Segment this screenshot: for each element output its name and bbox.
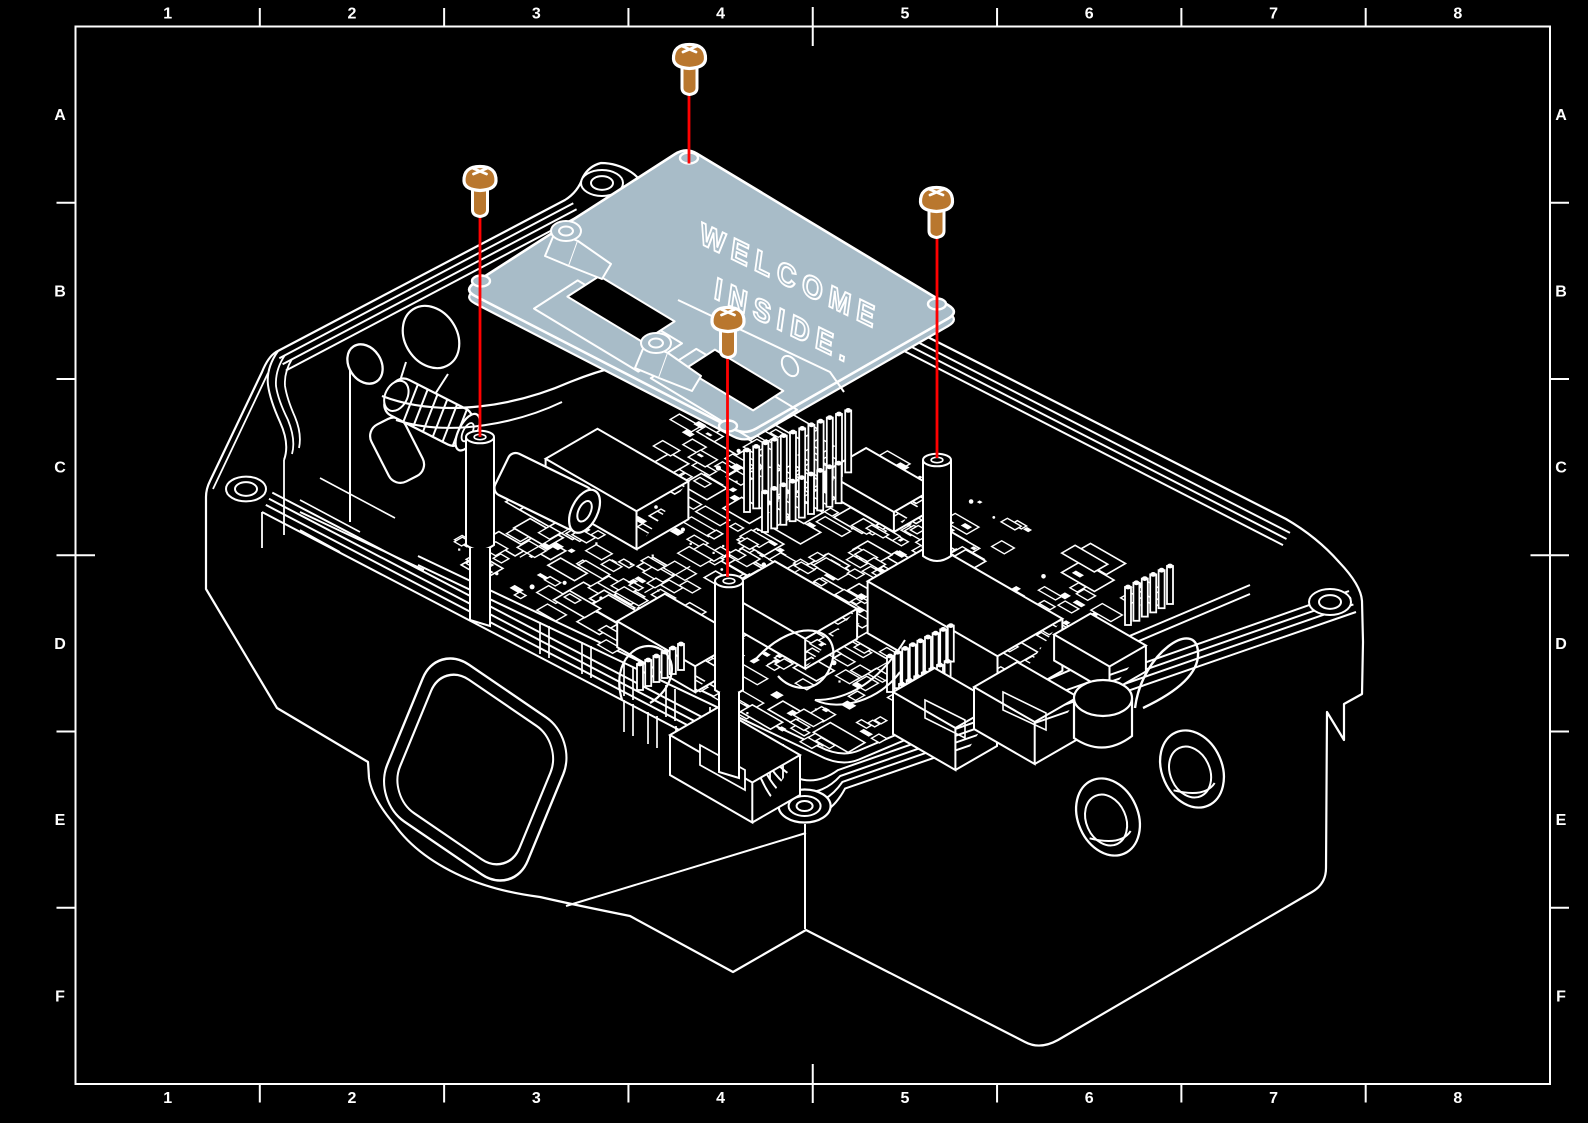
svg-text:C: C bbox=[1555, 460, 1567, 477]
svg-text:6: 6 bbox=[1085, 6, 1094, 23]
svg-text:2: 2 bbox=[348, 1090, 357, 1107]
svg-text:7: 7 bbox=[1269, 1090, 1278, 1107]
svg-text:E: E bbox=[1556, 812, 1567, 829]
svg-text:4: 4 bbox=[716, 1090, 725, 1107]
svg-text:F: F bbox=[55, 988, 65, 1005]
svg-text:8: 8 bbox=[1453, 6, 1462, 23]
svg-text:E: E bbox=[55, 812, 66, 829]
svg-text:F: F bbox=[1556, 988, 1566, 1005]
svg-text:B: B bbox=[54, 283, 66, 300]
svg-text:B: B bbox=[1555, 283, 1567, 300]
svg-text:D: D bbox=[54, 636, 66, 653]
svg-text:4: 4 bbox=[716, 6, 725, 23]
svg-text:D: D bbox=[1555, 636, 1567, 653]
svg-text:C: C bbox=[54, 460, 66, 477]
svg-text:2: 2 bbox=[348, 6, 357, 23]
svg-text:1: 1 bbox=[163, 1090, 172, 1107]
svg-text:8: 8 bbox=[1453, 1090, 1462, 1107]
svg-text:7: 7 bbox=[1269, 6, 1278, 23]
svg-text:5: 5 bbox=[900, 1090, 909, 1107]
svg-text:5: 5 bbox=[900, 6, 909, 23]
svg-text:A: A bbox=[54, 107, 66, 124]
svg-text:3: 3 bbox=[532, 6, 541, 23]
svg-text:1: 1 bbox=[163, 6, 172, 23]
svg-text:6: 6 bbox=[1085, 1090, 1094, 1107]
svg-text:3: 3 bbox=[532, 1090, 541, 1107]
svg-text:A: A bbox=[1555, 107, 1567, 124]
